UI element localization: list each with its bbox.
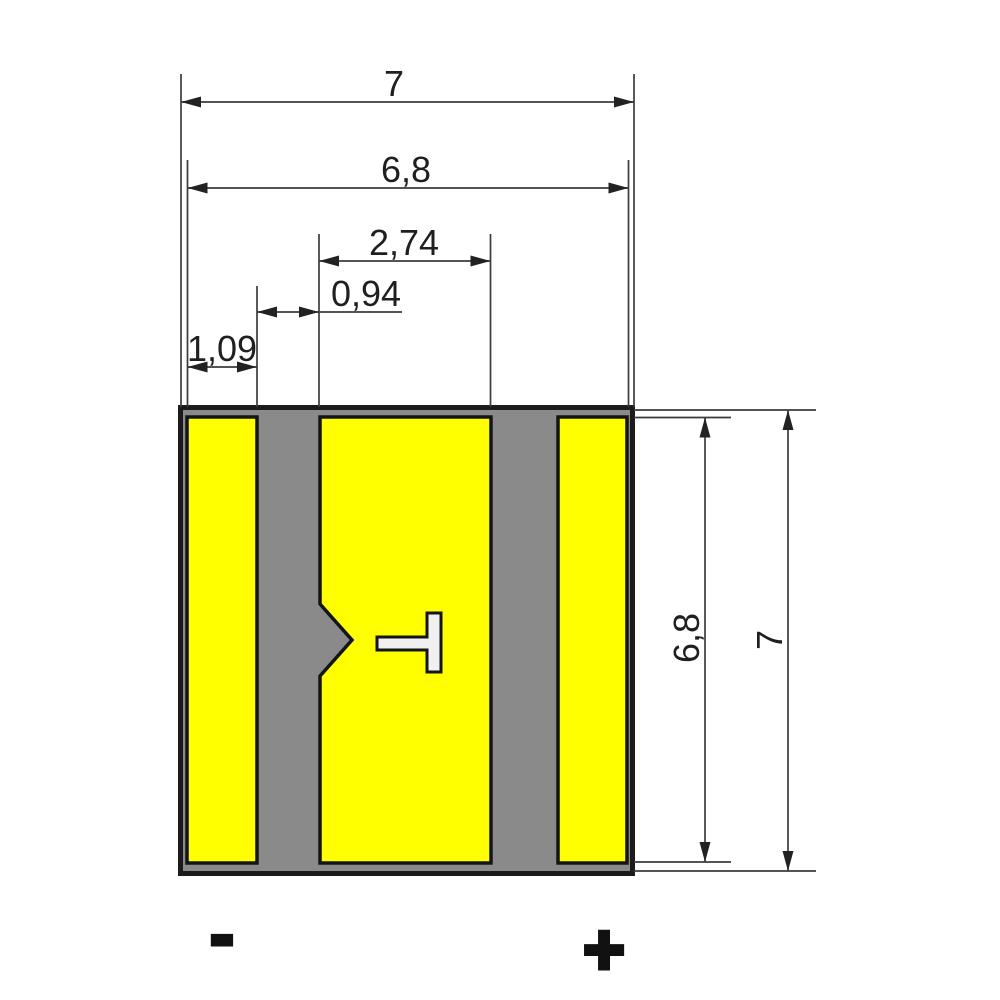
dim-label-left-pad-width: 1,09 xyxy=(187,328,257,369)
dim-label-inner-width: 6,8 xyxy=(381,149,431,190)
dim-inner-height: 6,8 xyxy=(634,418,731,863)
dim-pad-gap: 0,94 xyxy=(257,273,402,407)
dim-center-pad-width: 2,74 xyxy=(319,222,491,407)
technical-drawing: 7 6,8 2,74 0,94 xyxy=(0,0,1000,1000)
arrowhead-down xyxy=(700,842,711,862)
arrowhead-left xyxy=(188,183,208,194)
arrowhead-left xyxy=(257,307,277,318)
positive-polarity-marker: + xyxy=(583,910,625,990)
dim-label-inner-height: 6,8 xyxy=(666,613,707,663)
component-body-group xyxy=(181,408,633,874)
dim-label-pad-gap: 0,94 xyxy=(331,273,401,314)
arrowhead-right xyxy=(299,307,319,318)
right-pad xyxy=(558,417,627,863)
arrowhead-right xyxy=(614,97,634,108)
arrowhead-right xyxy=(471,256,491,267)
dim-label-outer-height: 7 xyxy=(749,630,790,650)
dim-label-outer-width: 7 xyxy=(384,63,404,104)
arrowhead-up xyxy=(783,410,794,430)
arrowhead-down xyxy=(783,851,794,871)
dim-label-center-pad-width: 2,74 xyxy=(369,222,439,263)
dim-left-pad-width: 1,09 xyxy=(187,328,257,373)
drawing-canvas: 7 6,8 2,74 0,94 xyxy=(0,0,1000,1000)
negative-polarity-marker: - xyxy=(210,895,234,975)
arrowhead-left xyxy=(319,256,339,267)
dim-outer-height: 7 xyxy=(634,410,816,871)
left-pad xyxy=(187,417,257,863)
arrowhead-right xyxy=(609,183,629,194)
arrowhead-up xyxy=(700,418,711,438)
polarity-markers: - + xyxy=(210,895,625,990)
arrowhead-left xyxy=(181,97,201,108)
